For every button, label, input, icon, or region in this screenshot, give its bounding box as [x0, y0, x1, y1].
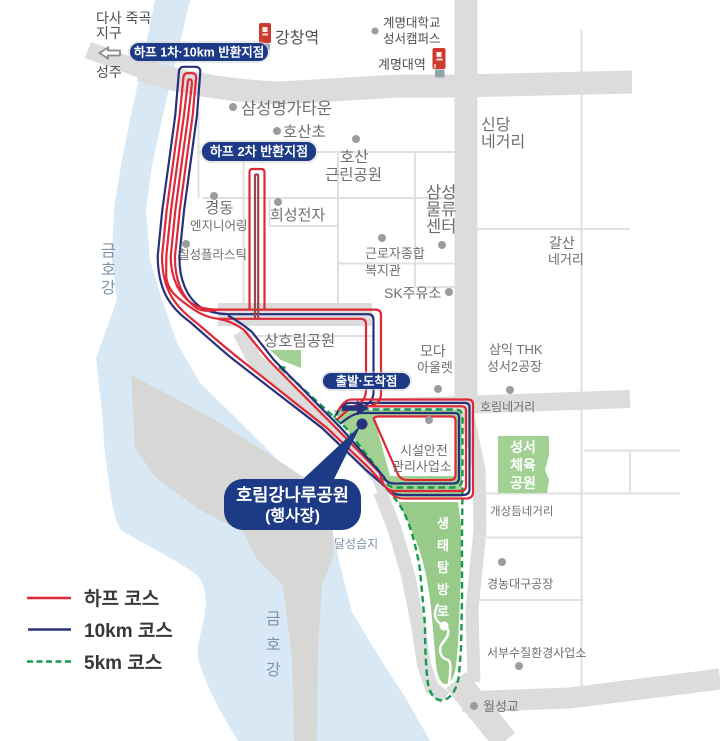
svg-text:칠성플라스틱: 칠성플라스틱: [178, 248, 247, 262]
svg-text:생: 생: [437, 516, 449, 531]
svg-text:달성습지: 달성습지: [334, 537, 378, 551]
svg-text:삼성: 삼성: [426, 183, 456, 202]
svg-text:네거리: 네거리: [548, 252, 584, 267]
svg-text:호산초: 호산초: [283, 123, 326, 141]
svg-text:금: 금: [101, 243, 116, 260]
svg-text:상호림공원: 상호림공원: [264, 332, 335, 350]
svg-text:강: 강: [101, 279, 116, 297]
svg-text:태: 태: [437, 538, 449, 553]
svg-text:호산: 호산: [340, 148, 369, 166]
svg-text:신당: 신당: [481, 116, 511, 134]
svg-text:엔지니어링: 엔지니어링: [190, 219, 248, 233]
svg-text:아울렛: 아울렛: [417, 360, 453, 375]
svg-text:갈산: 갈산: [549, 235, 575, 251]
svg-text:금: 금: [266, 611, 281, 628]
svg-text:호: 호: [266, 637, 281, 654]
svg-text:강: 강: [266, 661, 281, 679]
svg-text:호림강나루공원: 호림강나루공원: [236, 485, 349, 505]
svg-text:하프 2차 반환지점: 하프 2차 반환지점: [210, 144, 308, 159]
svg-text:경동: 경동: [205, 199, 234, 217]
svg-text:(행사장): (행사장): [265, 507, 320, 525]
svg-text:다사 죽곡: 다사 죽곡: [96, 10, 152, 26]
svg-text:계명대학교: 계명대학교: [383, 16, 441, 30]
svg-text:강창역: 강창역: [275, 29, 319, 47]
svg-text:출발·도착점: 출발·도착점: [336, 374, 398, 389]
svg-text:삼익 THK: 삼익 THK: [489, 342, 543, 357]
svg-text:5km 코스: 5km 코스: [84, 653, 162, 674]
svg-text:근로자종합: 근로자종합: [365, 246, 425, 261]
svg-text:시설안전: 시설안전: [400, 443, 448, 458]
svg-text:성주: 성주: [96, 64, 122, 80]
svg-text:성서캠퍼스: 성서캠퍼스: [383, 32, 441, 46]
svg-text:희성전자: 희성전자: [270, 207, 325, 224]
svg-text:공원: 공원: [510, 475, 536, 491]
svg-text:계명대역: 계명대역: [378, 57, 426, 72]
svg-text:월성교: 월성교: [483, 699, 519, 714]
svg-text:복지관: 복지관: [365, 263, 401, 278]
svg-text:체육: 체육: [510, 457, 536, 473]
svg-text:하프 1차·10km 반환지점: 하프 1차·10km 반환지점: [134, 45, 265, 60]
svg-text:하프 코스: 하프 코스: [84, 588, 159, 610]
svg-text:지구: 지구: [96, 25, 122, 41]
svg-text:10km 코스: 10km 코스: [84, 621, 173, 642]
svg-text:삼성명가타운: 삼성명가타운: [241, 99, 332, 118]
svg-text:탐: 탐: [437, 560, 449, 575]
svg-text:물류: 물류: [426, 201, 456, 219]
svg-text:서부수질환경사업소: 서부수질환경사업소: [487, 646, 586, 660]
svg-text:경농대구공장: 경농대구공장: [487, 577, 553, 591]
svg-text:호림네거리: 호림네거리: [480, 400, 535, 414]
svg-text:SK주유소: SK주유소: [384, 285, 441, 301]
svg-text:개상듬네거리: 개상듬네거리: [490, 505, 553, 518]
svg-text:방: 방: [437, 582, 449, 597]
svg-text:근린공원: 근린공원: [325, 166, 382, 184]
svg-text:성서2공장: 성서2공장: [487, 359, 542, 374]
svg-text:관리사업소: 관리사업소: [392, 459, 452, 474]
svg-text:센터: 센터: [426, 217, 456, 236]
svg-text:호: 호: [101, 262, 116, 279]
svg-text:로: 로: [437, 604, 449, 619]
svg-text:네거리: 네거리: [481, 133, 525, 151]
svg-text:모다: 모다: [420, 343, 446, 359]
svg-text:성서: 성서: [510, 439, 536, 455]
